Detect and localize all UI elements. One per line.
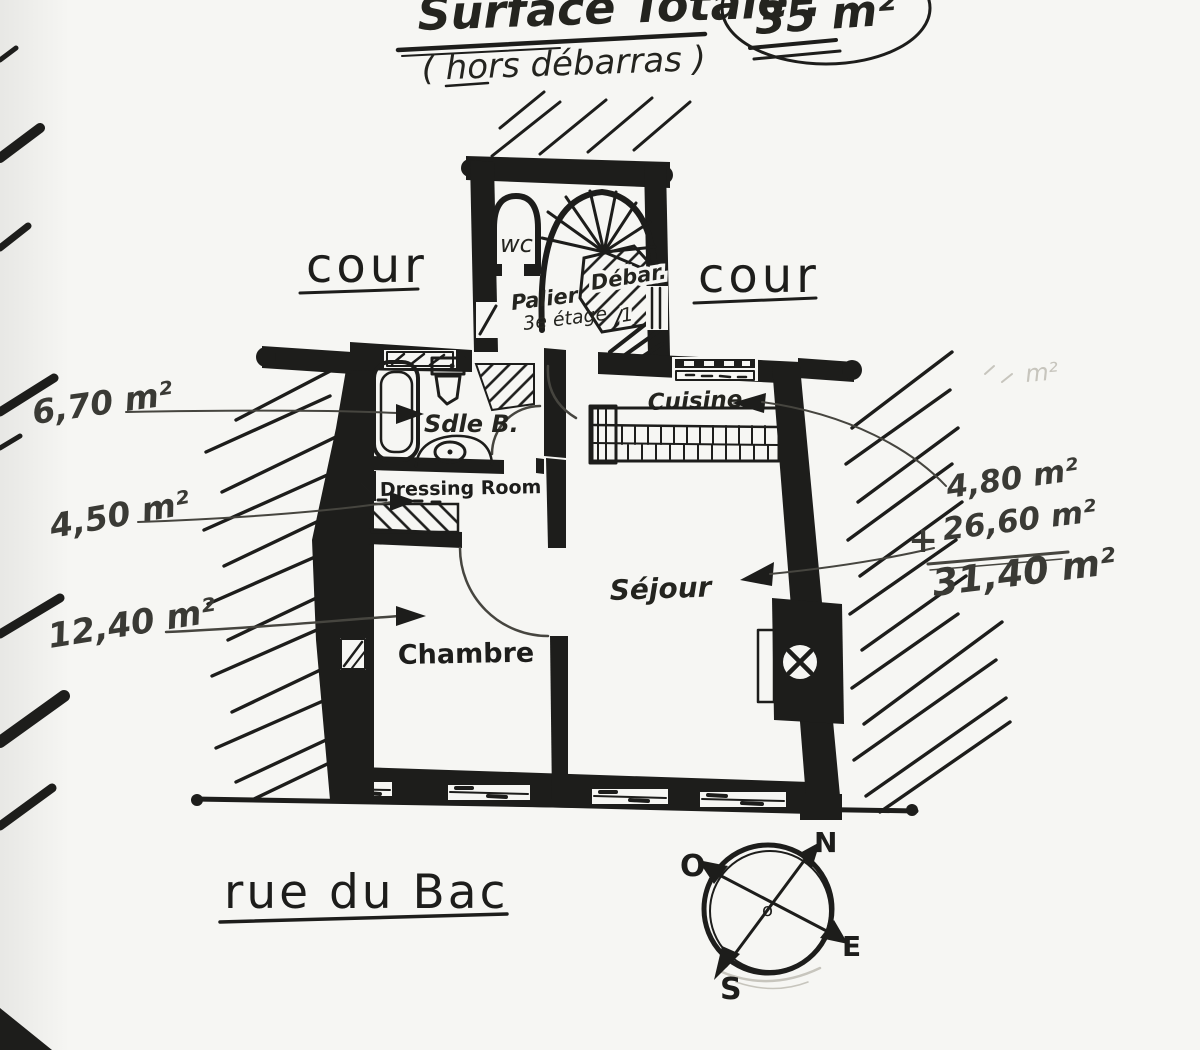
right-wall xyxy=(772,366,840,798)
compass-label-o: O xyxy=(680,849,706,884)
room-label-bedroom: Chambre xyxy=(398,638,535,671)
title-subtitle: ( hors débarras ) xyxy=(421,39,707,89)
right-wall-foot xyxy=(800,794,842,820)
total-value: 35 m² xyxy=(753,0,898,45)
tower-door-right xyxy=(646,286,668,330)
area-bedroom: 12,40 m² xyxy=(45,591,219,657)
partition-lower xyxy=(550,636,568,800)
compass-label-n: N xyxy=(814,826,837,859)
window-kitchen-courtyard xyxy=(672,357,758,381)
area-total: 31,40 m² xyxy=(930,540,1119,605)
compass-rose: N O E S o xyxy=(680,826,861,1007)
arrow-bedroom xyxy=(396,606,426,626)
room-label-bathroom: Sdle B. xyxy=(424,410,519,438)
partition-mid xyxy=(546,458,566,548)
arrow-living xyxy=(740,562,774,586)
room-label-wc: wc xyxy=(500,230,533,258)
compass-label-s: S xyxy=(720,972,742,1007)
scanned-floor-plan: Surface Totale : ( hors débarras ) 35 m²… xyxy=(0,0,1200,1050)
tower-top-wall xyxy=(466,156,670,188)
window-living-street-2 xyxy=(700,792,786,807)
faint-note-text: m² xyxy=(1024,357,1060,388)
courtyard-label-right: cour xyxy=(698,248,820,304)
courtyard-label-left: cour xyxy=(306,238,428,294)
stairwell-tower: wc Débar. 1 Palier 3e étage xyxy=(461,156,673,384)
window-bedroom-courtyard xyxy=(340,638,366,670)
hatching-above-stairwell xyxy=(492,92,690,156)
bathroom-closet-hatch xyxy=(476,364,534,410)
area-plus-sign: + xyxy=(908,520,938,561)
window-living-street xyxy=(592,789,668,804)
apartment-walls xyxy=(191,342,918,820)
compass-label-center: o xyxy=(762,900,773,921)
left-wall xyxy=(312,358,374,802)
street-label-group: rue du Bac xyxy=(220,865,508,922)
room-label-living: Séjour xyxy=(609,570,714,607)
room-label-kitchen: Cuisine xyxy=(647,387,743,416)
tower-door-left xyxy=(476,302,500,338)
partition-entry xyxy=(544,348,566,458)
window-bedroom-street-2 xyxy=(448,785,530,800)
street-label: rue du Bac xyxy=(224,865,508,920)
radiator xyxy=(758,630,774,702)
title-block: Surface Totale : ( hors débarras ) 35 m² xyxy=(398,0,930,89)
dressing-closet-hatch xyxy=(372,504,458,532)
faint-erased-note: m² xyxy=(985,357,1060,388)
floor-plan-drawing: Surface Totale : ( hors débarras ) 35 m²… xyxy=(0,0,1200,1050)
compass-label-e: E xyxy=(842,930,861,963)
door-bedroom xyxy=(460,548,548,636)
